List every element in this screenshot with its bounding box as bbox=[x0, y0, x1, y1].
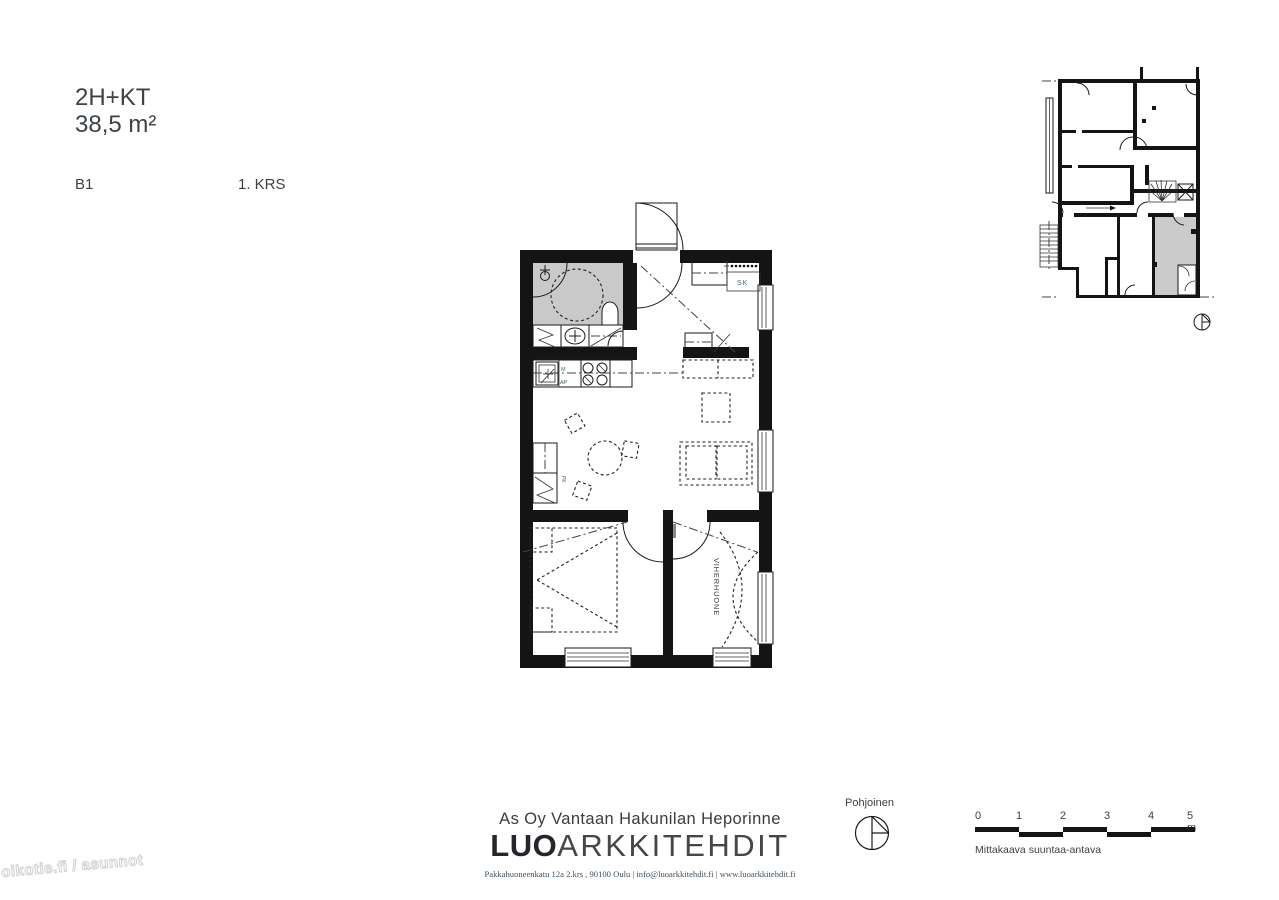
side-table bbox=[702, 393, 730, 422]
scale-tick: 1 bbox=[1016, 810, 1022, 822]
wardrobe bbox=[692, 260, 727, 285]
door-frame bbox=[673, 524, 676, 538]
floorplan-main: M AP SK bbox=[515, 200, 780, 670]
bedroom-door-arc bbox=[623, 522, 663, 562]
sight-line bbox=[641, 266, 735, 352]
greenroom-door-arc bbox=[673, 522, 710, 559]
scale-tick: 2 bbox=[1060, 810, 1066, 822]
unit-id: B1 bbox=[75, 176, 93, 193]
scale-tick: 4 bbox=[1148, 810, 1154, 822]
project-name: As Oy Vantaan Hakunilan Heporinne bbox=[420, 810, 860, 829]
kitchen-counter: M AP bbox=[533, 358, 683, 387]
corridor-arrow bbox=[1086, 206, 1116, 211]
stairs bbox=[1040, 221, 1058, 271]
scale-note: Mittakaava suuntaa-antava bbox=[975, 844, 1101, 856]
page-title: 2H+KT 38,5 m² bbox=[75, 84, 156, 138]
toilet bbox=[602, 302, 618, 325]
watermark: oikotie.fi / asunnot bbox=[1, 852, 144, 881]
cleaning-closet: SK bbox=[727, 272, 760, 291]
scale-bar-segments bbox=[975, 827, 1195, 837]
laundry-closet: PK bbox=[533, 443, 566, 503]
dining-table bbox=[564, 413, 639, 500]
logo-bold: LUO bbox=[490, 828, 557, 863]
tv-bench bbox=[683, 360, 753, 378]
apartment-type: 2H+KT bbox=[75, 84, 156, 111]
greenroom-plants bbox=[720, 532, 758, 647]
ceiling-slope-line bbox=[523, 522, 627, 552]
bed bbox=[530, 528, 617, 632]
scale-tick: 3 bbox=[1104, 810, 1110, 822]
architect-contact: Pakkahuoneenkatu 12a 2.krs , 90100 Oulu … bbox=[420, 869, 860, 879]
unit-bathroom bbox=[1178, 265, 1196, 295]
floor-label: 1. KRS bbox=[238, 176, 286, 193]
microwave-label: M bbox=[561, 367, 566, 373]
laundry-label: PK bbox=[560, 476, 566, 483]
architect-logo: LUOARKKITEHDIT bbox=[420, 829, 860, 863]
north-compass-icon bbox=[1194, 314, 1210, 330]
bathroom-door-arc bbox=[608, 331, 623, 346]
entrance-door bbox=[636, 203, 683, 308]
cleaning-closet-label: SK bbox=[737, 280, 748, 287]
north-label: Pohjoinen bbox=[845, 797, 894, 809]
scale-tick: 0 bbox=[975, 810, 981, 822]
ceiling-slope-line bbox=[673, 522, 757, 552]
sofa bbox=[680, 442, 752, 485]
window bbox=[1046, 98, 1053, 193]
scale-bar: 0 1 2 3 4 5 m Mittakaava suuntaa-antava bbox=[975, 810, 1205, 858]
bathroom-counter bbox=[533, 325, 623, 347]
dishwasher-label: AP bbox=[560, 380, 568, 386]
floorplan-overview bbox=[1030, 50, 1220, 340]
logo-light: ARKKITEHDIT bbox=[557, 828, 789, 863]
greenroom-label: VIHERHUONE bbox=[712, 558, 721, 616]
apartment-area: 38,5 m² bbox=[75, 111, 156, 138]
